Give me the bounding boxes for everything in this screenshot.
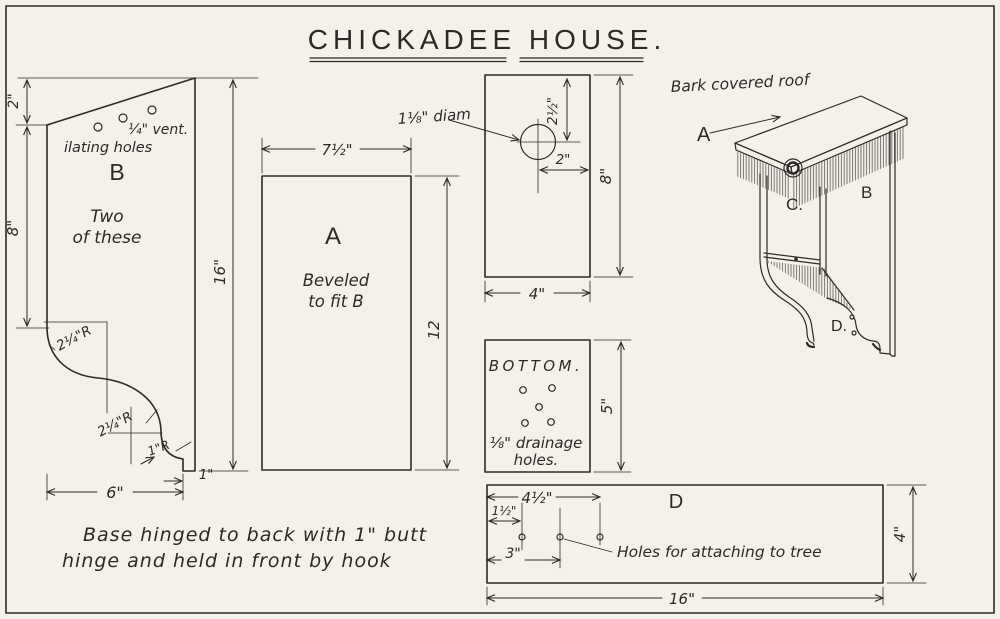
piece-a-outline bbox=[262, 176, 411, 470]
dim-2half: 2½" bbox=[545, 97, 561, 125]
dim-7half: 7½" bbox=[322, 141, 353, 159]
mounting-holes-note: Holes for attaching to tree bbox=[617, 543, 822, 561]
piece-a-back-panel: A Beveled to fit B 7½" 12 bbox=[262, 138, 459, 470]
title-block: CHICKADEE HOUSE. bbox=[308, 24, 667, 62]
chickadee-house-plan-drawing: CHICKADEE HOUSE. ¼" vent. ilating holes … bbox=[0, 0, 1000, 619]
screw-hole-upper bbox=[850, 315, 854, 319]
dim-5in: 5" bbox=[598, 398, 616, 414]
piece-c-dimensions: 2½" 2" 8" 4" bbox=[485, 75, 633, 303]
piece-a-label: A bbox=[325, 223, 341, 250]
dim-12: 12 bbox=[425, 320, 443, 339]
piece-a-bevel-line2: to fit B bbox=[308, 292, 364, 311]
piece-d-label: D bbox=[669, 491, 683, 513]
piece-b-qty-line2: of these bbox=[72, 228, 141, 248]
hinge-footnote: Base hinged to back with 1" butt hinge a… bbox=[62, 524, 428, 572]
piece-d-base-panel: D 4½" 1½" 3" Holes for attaching to tree… bbox=[487, 485, 926, 608]
bark-fringe-left bbox=[736, 151, 790, 199]
dim-4half: 4½" bbox=[522, 489, 553, 507]
piece-b-qty-line1: Two bbox=[90, 207, 123, 227]
assembly-entrance-hole-rim bbox=[788, 163, 799, 174]
mounting-holes bbox=[519, 534, 603, 540]
radius-lower-label: 2¼"R bbox=[95, 409, 135, 441]
radius-upper-label: 2¼"R bbox=[54, 323, 94, 355]
dim-1in-foot: 1" bbox=[199, 468, 213, 483]
dim-16in: 16" bbox=[211, 259, 229, 285]
bottom-panel: BOTTOM. ⅛" drainage holes. 5" bbox=[485, 340, 631, 472]
dim-8in-front: 8" bbox=[597, 168, 615, 184]
piece-b-radius-callouts: 2¼"R 2¼"R 1"R bbox=[44, 322, 191, 464]
mounting-hole-centerlines bbox=[522, 503, 600, 568]
dim-6in: 6" bbox=[106, 483, 124, 502]
bark-fringe-right bbox=[792, 126, 905, 209]
dim-2in: 2" bbox=[6, 93, 22, 108]
nail-dot bbox=[794, 257, 798, 261]
dim-4in-front: 4" bbox=[529, 285, 545, 303]
dim-16in-base: 16" bbox=[669, 590, 695, 608]
page-title: CHICKADEE HOUSE. bbox=[308, 24, 667, 55]
roof-note: Bark covered roof bbox=[670, 71, 812, 96]
bottom-panel-label: BOTTOM. bbox=[489, 357, 583, 375]
assembly-perspective-view: Bark covered roof A bbox=[670, 71, 907, 357]
shadow-hatch-wedge bbox=[766, 261, 852, 310]
assembly-label-a: A bbox=[697, 124, 711, 146]
piece-c-outline bbox=[485, 75, 590, 277]
piece-b-side-panel: ¼" vent. ilating holes B Two of these 2"… bbox=[4, 78, 258, 502]
title-underline bbox=[310, 58, 643, 62]
drainage-note-line2: holes. bbox=[514, 451, 559, 469]
footnote-line1: Base hinged to back with 1" butt bbox=[83, 524, 428, 546]
assembly-label-b: B bbox=[861, 183, 872, 202]
assembly-label-d: D. bbox=[831, 318, 847, 335]
sheet-border bbox=[6, 6, 994, 613]
dim-8in-side: 8" bbox=[4, 220, 22, 236]
dim-1half: 1½" bbox=[492, 504, 517, 518]
radius-foot-label: 1"R bbox=[145, 437, 171, 459]
drainage-holes bbox=[520, 385, 556, 427]
drawing-sheet: CHICKADEE HOUSE. ¼" vent. ilating holes … bbox=[0, 0, 1000, 619]
footnote-line2: hinge and held in front by hook bbox=[62, 550, 392, 572]
bottom-panel-dimensions: 5" bbox=[594, 340, 631, 472]
piece-d-dimensions: 4½" 1½" 3" Holes for attaching to tree 1… bbox=[487, 485, 926, 608]
dim-4in-base: 4" bbox=[891, 526, 909, 542]
assembly-label-c: C. bbox=[786, 195, 803, 214]
screw-hole-lower bbox=[852, 331, 856, 335]
hole-diameter-label: 1⅛" diam bbox=[397, 105, 471, 128]
piece-a-bevel-line1: Beveled bbox=[303, 271, 370, 290]
vent-note-line1: ¼" vent. bbox=[128, 122, 188, 138]
piece-b-label: B bbox=[109, 159, 124, 185]
dim-2in-hole: 2" bbox=[556, 152, 571, 168]
vent-note-line2: ilating holes bbox=[64, 140, 153, 156]
dim-3in: 3" bbox=[505, 546, 520, 562]
piece-c-front-panel: 1⅛" diam 2½" 2" 8" 4" bbox=[397, 75, 633, 303]
drainage-note-line1: ⅛" drainage bbox=[490, 434, 583, 452]
